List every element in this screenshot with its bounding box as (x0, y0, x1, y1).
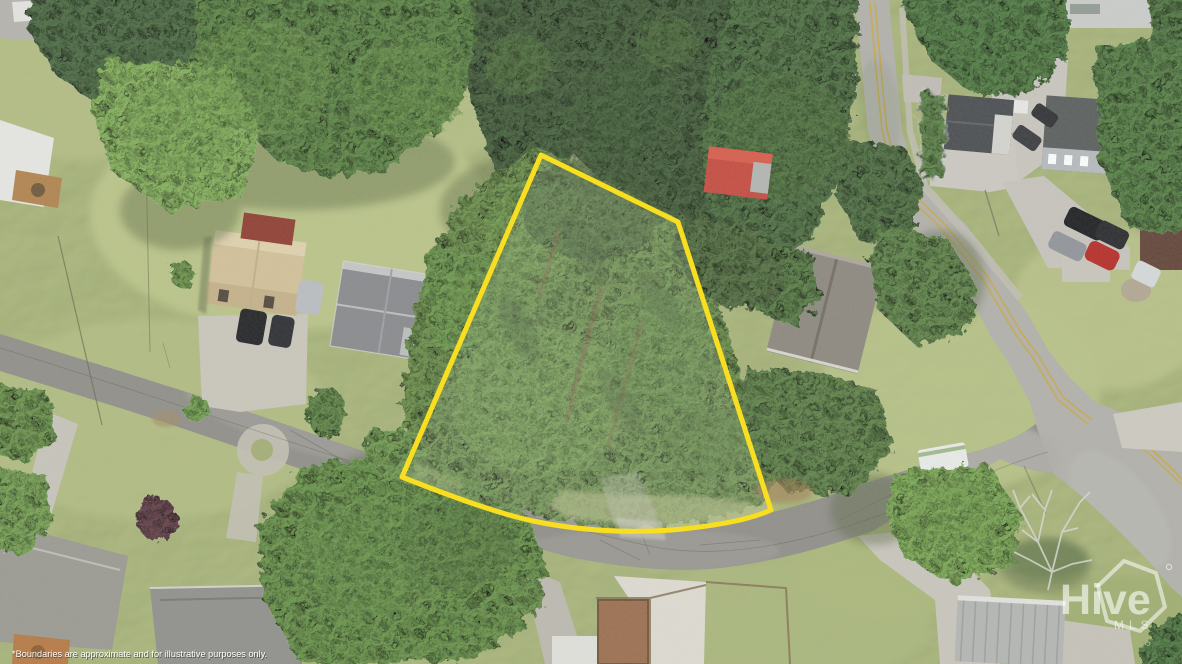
svg-text:MLS: MLS (1114, 618, 1154, 632)
svg-text:*Boundaries are approximate an: *Boundaries are approximate and for illu… (12, 649, 267, 659)
svg-text:Hive: Hive (1060, 576, 1151, 624)
